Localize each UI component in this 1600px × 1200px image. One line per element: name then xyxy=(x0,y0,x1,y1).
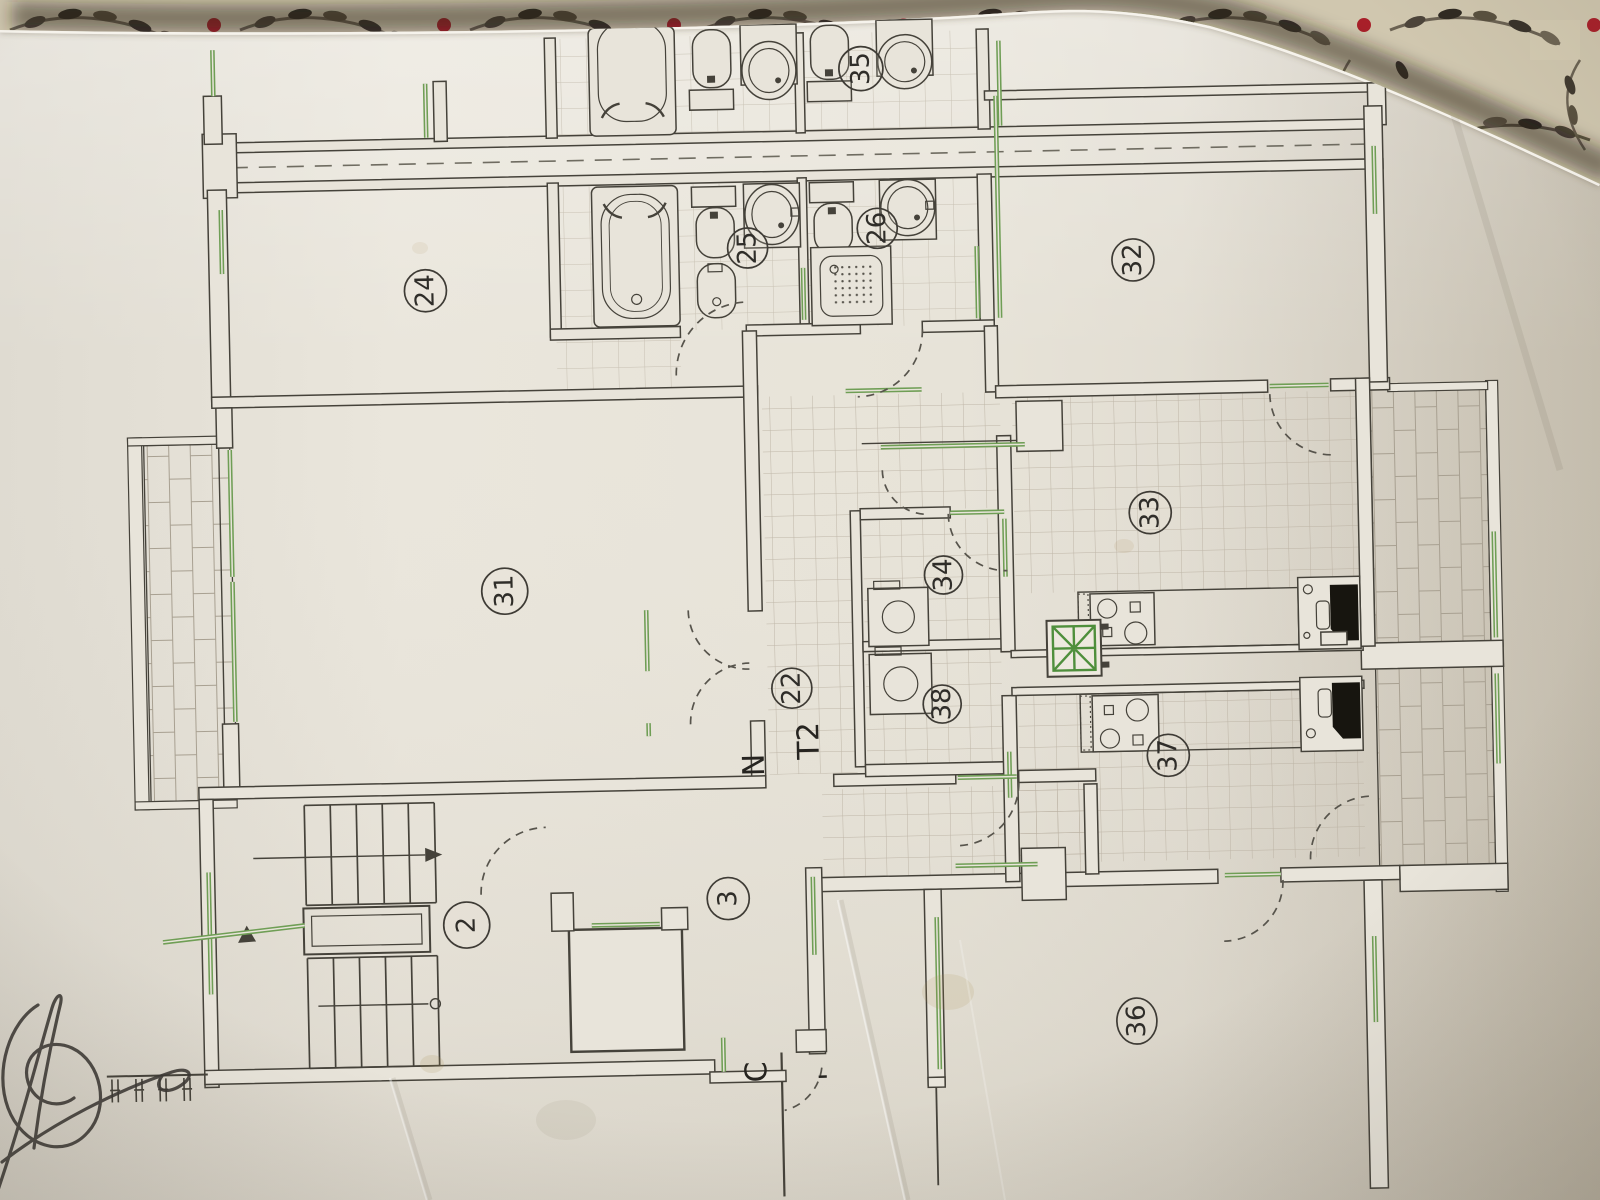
vignette-overlay xyxy=(0,0,1600,1200)
photo-of-floor-plan: 24 25 26 35 32 31 22 33 34 38 37 36 2 xyxy=(0,0,1600,1200)
scene: 24 25 26 35 32 31 22 33 34 38 37 36 2 xyxy=(0,0,1600,1200)
